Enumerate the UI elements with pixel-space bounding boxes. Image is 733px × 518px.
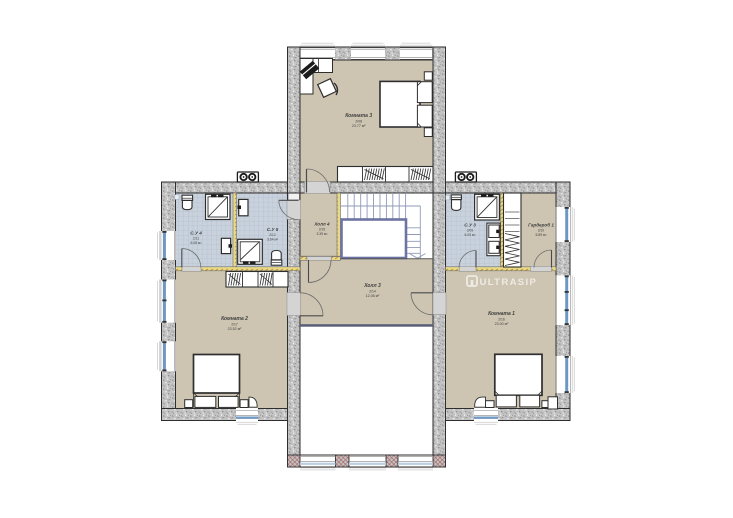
svg-text:2/11: 2/11	[193, 237, 199, 241]
svg-text:Комната 1: Комната 1	[488, 311, 515, 317]
svg-text:2/10: 2/10	[538, 229, 544, 233]
svg-text:3.64 м²: 3.64 м²	[267, 237, 279, 241]
svg-text:23.00 м²: 23.00 м²	[495, 322, 509, 326]
svg-text:6.00 м²: 6.00 м²	[464, 233, 476, 237]
svg-text:Гардероб 1: Гардероб 1	[528, 222, 554, 228]
svg-text:2/08: 2/08	[355, 119, 362, 123]
svg-text:Холл 3: Холл 3	[363, 283, 381, 289]
svg-text:2/17: 2/17	[231, 322, 238, 326]
svg-text:12.06 м²: 12.06 м²	[366, 294, 380, 298]
svg-text:С.У 3: С.У 3	[464, 223, 476, 228]
svg-text:С.У 5: С.У 5	[267, 227, 279, 232]
svg-text:3.39 м²: 3.39 м²	[316, 232, 328, 236]
svg-text:2/09: 2/09	[467, 229, 473, 233]
svg-text:2/16: 2/16	[498, 317, 505, 321]
svg-text:ULTRASIP: ULTRASIP	[480, 277, 538, 288]
svg-text:23.77 м²: 23.77 м²	[352, 124, 366, 128]
svg-text:Комната 3: Комната 3	[345, 113, 372, 119]
svg-text:5.89 м²: 5.89 м²	[535, 233, 547, 237]
svg-text:Холл 4: Холл 4	[313, 222, 330, 227]
svg-text:2/12: 2/12	[269, 233, 275, 237]
svg-text:6.08 м²: 6.08 м²	[190, 241, 202, 245]
svg-text:23.52 м²: 23.52 м²	[228, 327, 242, 331]
svg-text:2/15: 2/15	[319, 228, 325, 232]
svg-text:2/14: 2/14	[369, 289, 376, 293]
svg-text:С.У 4: С.У 4	[190, 231, 202, 236]
svg-text:Комната 2: Комната 2	[221, 316, 248, 322]
